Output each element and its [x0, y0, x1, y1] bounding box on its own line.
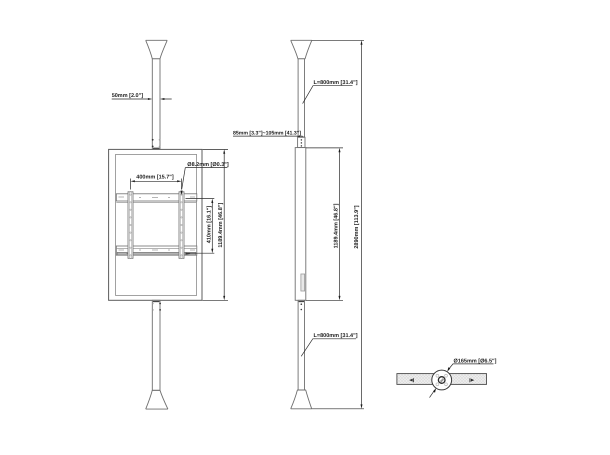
- svg-text:Ø165mm [Ø6.5"]: Ø165mm [Ø6.5"]: [454, 358, 497, 364]
- svg-text:2890mm [113.9"]: 2890mm [113.9"]: [354, 205, 360, 248]
- svg-text:410mm [16.1"]: 410mm [16.1"]: [206, 206, 212, 244]
- svg-text:50mm [2.0"]: 50mm [2.0"]: [112, 93, 144, 99]
- svg-text:1189.4mm [46.8"]: 1189.4mm [46.8"]: [333, 203, 339, 248]
- svg-text:Ø8.2mm [Ø0.3"]: Ø8.2mm [Ø0.3"]: [187, 162, 229, 168]
- svg-text:L=800mm [31.4"]: L=800mm [31.4"]: [314, 333, 358, 339]
- svg-text:L=800mm [31.4"]: L=800mm [31.4"]: [314, 80, 358, 86]
- svg-text:85mm [3.3"]~105mm [41.3"]: 85mm [3.3"]~105mm [41.3"]: [233, 130, 301, 136]
- svg-text:1189.4mm [46.8"]: 1189.4mm [46.8"]: [218, 203, 224, 248]
- svg-text:400mm [15.7"]: 400mm [15.7"]: [136, 174, 174, 180]
